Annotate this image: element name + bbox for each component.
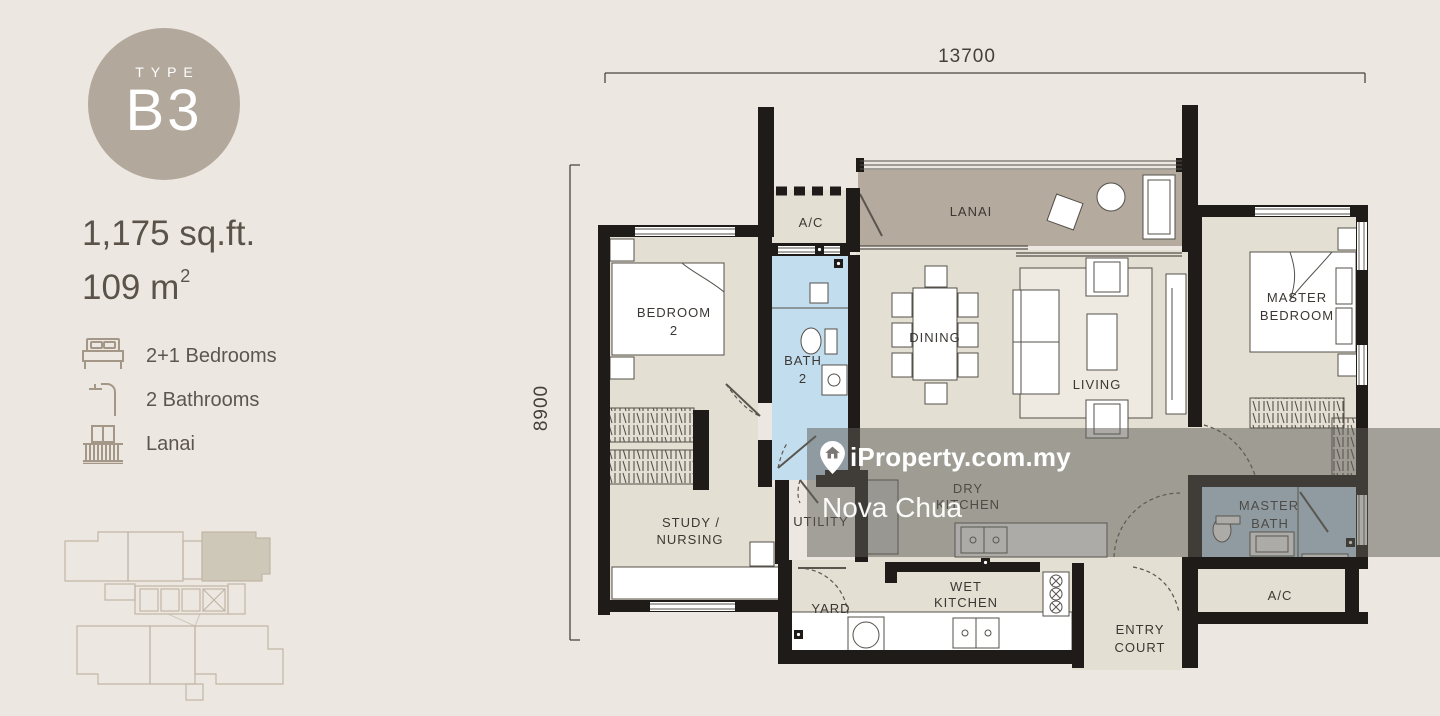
feature-bedrooms-label: 2+1 Bedrooms [146,345,277,368]
floor-plan: 13700 8900 [520,40,1440,716]
feature-bathrooms: 2 Bathrooms [78,378,378,422]
label-lanai: LANAI [950,204,993,219]
side-table [610,357,634,379]
keyplan-unit [183,541,202,579]
building-key-plan [40,524,330,709]
wardrobe [608,450,694,484]
label-study: STUDY / [662,515,720,530]
feature-bathrooms-label: 2 Bathrooms [146,389,259,412]
keyplan-highlighted-unit [202,532,270,581]
lanai-floor [858,170,1184,246]
unit-area-sqft: 1,175 sq.ft. [82,214,255,254]
dimension-depth: 8900 [531,165,580,640]
watermark-agent: Nova Chua [822,492,962,524]
shower-icon [78,380,128,420]
watermark-brand: iProperty.com.my [850,442,1071,473]
keyplan-unit [65,532,128,581]
label-study2: NURSING [657,532,724,547]
wet-kitchen-counter [790,612,1072,652]
label-ac-top: A/C [799,215,824,230]
feature-list: 2+1 Bedrooms 2 Bathrooms [78,334,378,466]
keyplan-unit [195,626,283,684]
keyplan-unit [150,626,195,684]
study-desk [750,542,774,566]
wardrobe [1250,398,1344,428]
feature-lanai: Lanai [78,422,378,466]
bed-icon [78,337,128,375]
armchair [1086,258,1128,296]
coffee-table [1087,314,1117,370]
label-entry2: COURT [1115,640,1166,655]
lanai-table [1097,183,1125,211]
feature-bedrooms: 2+1 Bedrooms [78,334,378,378]
keyplan-unit [128,532,183,581]
label-master-bedroom: MASTER [1267,290,1327,305]
label-bath2: BATH [784,353,822,368]
dimension-depth-value: 8900 [531,385,552,431]
label-dining: DINING [909,330,961,345]
vanity [822,365,847,395]
wardrobe [608,408,694,442]
dimension-width-value: 13700 [938,46,996,67]
unit-area-m2-base: 109 m [82,268,179,307]
label-bath2-num: 2 [799,371,807,386]
label-ac-bottom: A/C [1268,588,1293,603]
keyplan-core [105,584,135,600]
shower-shelf [810,283,828,303]
study-bay [612,567,784,599]
side-table [1338,228,1358,250]
feature-lanai-label: Lanai [146,433,195,456]
label-wet-kitchen2: KITCHEN [934,595,998,610]
side-table [610,239,634,261]
unit-area-m2-sup: 2 [180,266,190,286]
label-entry: ENTRY [1116,622,1165,637]
label-living: LIVING [1073,377,1122,392]
unit-area-m2: 109 m2 [82,268,189,308]
tv-console [1166,274,1186,414]
iproperty-pin-icon [820,441,845,474]
label-master-bedroom2: BEDROOM [1260,308,1334,323]
dimension-width: 13700 [605,46,1365,83]
balcony-icon [78,424,128,464]
side-table [1338,354,1358,376]
label-yard: YARD [811,601,850,616]
watermark-banner: iProperty.com.my Nova Chua [807,428,1440,557]
floorplan-page: { "page": { "background": "#ece8e1" }, "… [0,0,1440,716]
toilet [801,328,821,354]
label-bedroom2: BEDROOM [637,305,711,320]
unit-type-badge: TYPE B3 [88,28,240,180]
unit-type-code: B3 [88,82,240,140]
watermark-brand-row: iProperty.com.my [820,441,1071,474]
label-wet-kitchen: WET [950,579,982,594]
keyplan-unit [77,626,150,684]
label-bedroom2-num: 2 [670,323,678,338]
